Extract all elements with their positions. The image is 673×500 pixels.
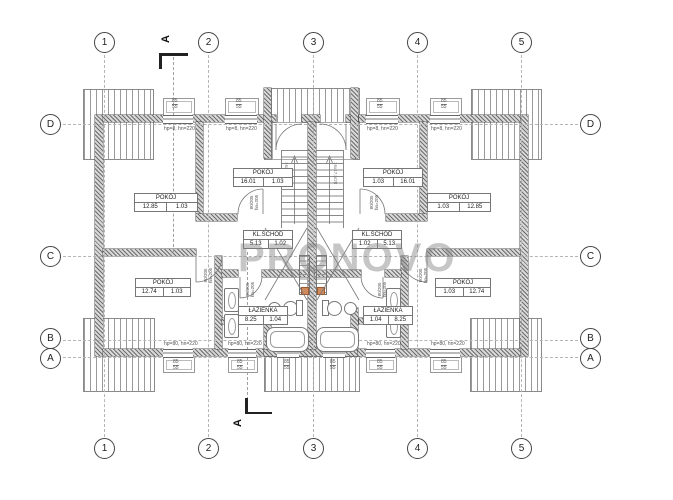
window-note: hp=80, hn=220 <box>431 342 465 347</box>
door-dim: 80/205hn=205 <box>378 282 387 297</box>
door-dim: 80/205hn=205 <box>250 195 259 210</box>
room-value: 8.25 <box>389 316 413 324</box>
window-dim: 8555 <box>377 99 383 110</box>
dim-value: hn=205 <box>250 282 255 297</box>
room-label-pokoj-12-74-right: POKÓJ 1.0312.74 <box>435 278 491 297</box>
grid-label: C <box>587 251 594 262</box>
grid-bubble-3-top: 3 <box>303 32 324 53</box>
window-dim: 8555 <box>236 99 242 110</box>
window-dim: 8555 <box>330 360 336 371</box>
room-value: 1.04 <box>264 316 288 324</box>
room-label-lazienka-left: ŁAZIENKA 8.251.04 <box>238 306 288 325</box>
floor-plan-drawing: 16x17,5/28 16x17,5/28 <box>0 0 673 500</box>
dim-value: hn=205 <box>254 195 259 210</box>
room-label-pokoj-16-01-right: POKÓJ 1.0316.01 <box>363 168 423 187</box>
dim-value: 55 <box>441 366 447 371</box>
room-value: 16.01 <box>234 178 264 186</box>
grid-label: B <box>587 333 594 344</box>
section-marker-label-bottom: A <box>232 419 244 427</box>
dim-value: hn=205 <box>374 195 379 210</box>
dim-value: 55 <box>236 105 242 110</box>
window-note: hp=80, hn=220 <box>164 342 198 347</box>
grid-label: 1 <box>102 37 108 48</box>
room-name: POKÓJ <box>428 194 490 203</box>
grid-bubble-4-bottom: 4 <box>407 438 428 459</box>
section-marker-line <box>159 53 188 56</box>
dim-value: 55 <box>172 105 178 110</box>
window-note: hp=8, hn=220 <box>226 127 257 132</box>
section-marker-line <box>245 412 272 415</box>
door-dim: 80/205hn=205 <box>370 195 379 210</box>
grid-bubble-D-right: D <box>580 114 601 135</box>
grid-bubble-5-top: 5 <box>511 32 532 53</box>
door-dim: 80/205hn=205 <box>246 282 255 297</box>
room-value: 12.74 <box>464 288 491 296</box>
grid-label: A <box>47 353 54 364</box>
grid-label: 1 <box>102 443 108 454</box>
window-dim: 8555 <box>237 360 243 371</box>
grid-label: 4 <box>415 443 421 454</box>
grid-bubble-B-left: B <box>40 328 61 349</box>
grid-label: D <box>587 119 594 130</box>
window-dim: 8555 <box>172 99 178 110</box>
room-value: 1.03 <box>167 203 198 211</box>
grid-bubble-4-top: 4 <box>407 32 428 53</box>
window-note: hp=8, hn=220 <box>431 127 462 132</box>
room-value: 1.03 <box>428 203 460 211</box>
room-value: 12.74 <box>136 288 164 296</box>
room-name: POKÓJ <box>234 169 292 178</box>
dim-value: 55 <box>284 366 290 371</box>
grid-label: 5 <box>519 443 525 454</box>
grid-label: C <box>47 251 54 262</box>
grid-bubble-D-left: D <box>40 114 61 135</box>
window-dim: 8555 <box>441 360 447 371</box>
dim-value: 55 <box>330 366 336 371</box>
grid-bubble-5-bottom: 5 <box>511 438 532 459</box>
grid-bubble-2-bottom: 2 <box>198 438 219 459</box>
grid-bubble-1-top: 1 <box>94 32 115 53</box>
dim-value: hn=205 <box>382 282 387 297</box>
section-marker-line <box>159 53 162 69</box>
room-value: 1.03 <box>264 178 293 186</box>
room-name: ŁAZIENKA <box>364 307 412 316</box>
room-label-pokoj-12-74: POKÓJ 12.741.03 <box>135 278 191 297</box>
grid-label: B <box>47 333 54 344</box>
room-value: 1.03 <box>436 288 464 296</box>
grid-label: 3 <box>311 443 317 454</box>
window-dim: 8555 <box>377 360 383 371</box>
window-note: hp=80, hn=220 <box>228 342 262 347</box>
grid-bubble-A-left: A <box>40 348 61 369</box>
room-label-pokoj-16-01: POKÓJ 16.011.03 <box>233 168 293 187</box>
window-dim: 8555 <box>173 360 179 371</box>
room-name: POKÓJ <box>135 194 197 203</box>
grid-bubble-2-top: 2 <box>198 32 219 53</box>
grid-label: 4 <box>415 37 421 48</box>
room-name: ŁAZIENKA <box>239 307 287 316</box>
dim-value: 55 <box>377 105 383 110</box>
dim-value: 55 <box>441 105 447 110</box>
pronovo-watermark: PRONOVO <box>238 238 456 278</box>
window-dim: 8555 <box>441 99 447 110</box>
room-value: 12.85 <box>460 203 491 211</box>
room-label-pokoj-12-85: POKÓJ 12.851.03 <box>134 193 198 212</box>
grid-bubble-1-bottom: 1 <box>94 438 115 459</box>
room-value: 1.04 <box>364 316 389 324</box>
grid-label: D <box>47 119 54 130</box>
window-note: hp=8, hn=220 <box>367 127 398 132</box>
room-label-pokoj-12-85-right: POKÓJ 1.0312.85 <box>427 193 491 212</box>
room-name: POKÓJ <box>364 169 422 178</box>
dim-value: 55 <box>377 366 383 371</box>
dim-value: hn=205 <box>208 268 213 283</box>
room-value: 8.25 <box>239 316 264 324</box>
grid-bubble-3-bottom: 3 <box>303 438 324 459</box>
room-value: 1.03 <box>164 288 191 296</box>
grid-label: A <box>587 353 594 364</box>
room-name: POKÓJ <box>136 279 190 288</box>
room-value: 16.01 <box>394 178 423 186</box>
window-note: hp=80, hn=220 <box>367 342 401 347</box>
room-value: 12.85 <box>135 203 167 211</box>
window-dim: 8555 <box>284 360 290 371</box>
grid-bubble-A-right: A <box>580 348 601 369</box>
door-dim: 80/205hn=205 <box>204 268 213 283</box>
room-name: POKÓJ <box>436 279 490 288</box>
window-note: hp=8, hn=220 <box>164 127 195 132</box>
grid-label: 2 <box>206 443 212 454</box>
room-label-lazienka-right: ŁAZIENKA 1.048.25 <box>363 306 413 325</box>
grid-bubble-C-right: C <box>580 246 601 267</box>
grid-bubble-C-left: C <box>40 246 61 267</box>
dim-value: 55 <box>173 366 179 371</box>
section-marker-label-top: A <box>160 35 172 43</box>
grid-label: 2 <box>206 37 212 48</box>
grid-label: 5 <box>519 37 525 48</box>
room-value: 1.03 <box>364 178 394 186</box>
grid-label: 3 <box>311 37 317 48</box>
grid-bubble-B-right: B <box>580 328 601 349</box>
dim-value: 55 <box>237 366 243 371</box>
stair-note-right: 16x17,5/28 <box>333 162 338 184</box>
